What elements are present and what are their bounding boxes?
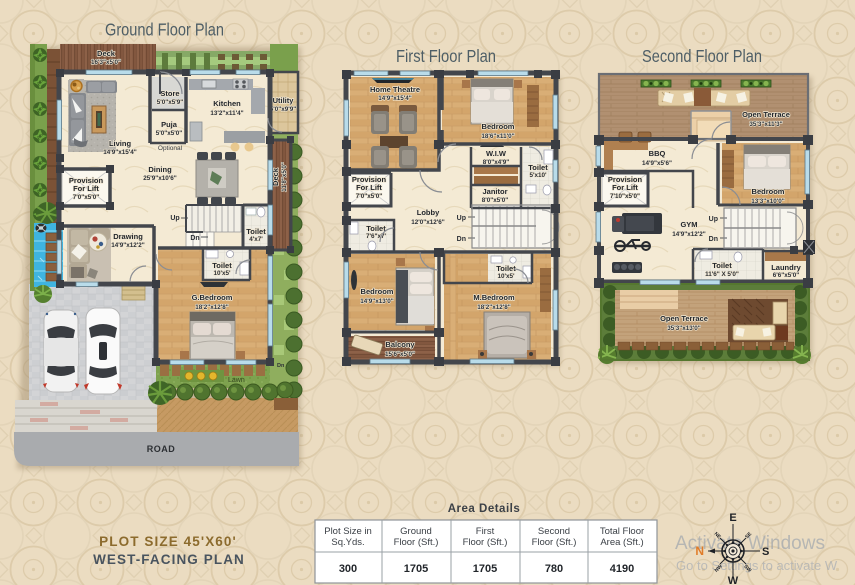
svg-text:Dn: Dn <box>709 236 718 243</box>
svg-text:13'2"x11'4": 13'2"x11'4" <box>210 110 243 117</box>
svg-text:Sq.Yds.: Sq.Yds. <box>331 537 364 548</box>
svg-text:Up: Up <box>709 216 718 223</box>
svg-text:10'x5': 10'x5' <box>213 270 231 277</box>
svg-text:Utility: Utility <box>273 96 295 105</box>
svg-text:PLOT SIZE 45'X60': PLOT SIZE 45'X60' <box>99 534 237 549</box>
svg-text:14'9"x12'2": 14'9"x12'2" <box>111 242 144 249</box>
svg-text:First: First <box>476 526 495 537</box>
svg-text:Bedroom: Bedroom <box>752 187 785 196</box>
svg-text:Floor (Sft.): Floor (Sft.) <box>394 537 439 548</box>
svg-text:7'0"x5'0": 7'0"x5'0" <box>356 193 382 200</box>
svg-text:E: E <box>729 512 736 524</box>
svg-text:6'6"x5'0": 6'6"x5'0" <box>773 272 799 279</box>
svg-text:10'x5': 10'x5' <box>497 273 515 280</box>
svg-text:14'9"x12'2": 14'9"x12'2" <box>672 231 705 238</box>
svg-text:Living: Living <box>109 139 132 148</box>
svg-text:Plot Size in: Plot Size in <box>324 526 372 537</box>
svg-text:Second Floor Plan: Second Floor Plan <box>642 46 762 66</box>
svg-text:7'6"x7': 7'6"x7' <box>366 233 386 240</box>
svg-text:Bedroom: Bedroom <box>482 122 515 131</box>
svg-text:Laundry: Laundry <box>771 263 801 272</box>
svg-text:For Lift: For Lift <box>356 183 382 192</box>
svg-text:Bedroom: Bedroom <box>361 287 394 296</box>
svg-text:Dining: Dining <box>148 165 172 174</box>
svg-text:5'0"x5'9": 5'0"x5'9" <box>157 99 183 106</box>
svg-text:18'6"x11'0": 18'6"x11'0" <box>481 133 514 140</box>
svg-text:Toilet: Toilet <box>212 261 232 270</box>
svg-text:7'0"x5'0": 7'0"x5'0" <box>73 194 99 201</box>
svg-text:S: S <box>762 546 769 558</box>
svg-text:8'0"x5'0": 8'0"x5'0" <box>482 197 508 204</box>
svg-text:11'8"x5'0": 11'8"x5'0" <box>281 162 288 192</box>
svg-text:For Lift: For Lift <box>73 184 99 193</box>
svg-text:15'6"x5'0": 15'6"x5'0" <box>385 351 415 358</box>
svg-text:780: 780 <box>545 563 563 575</box>
svg-text:25'9"x10'6": 25'9"x10'6" <box>143 175 176 182</box>
svg-text:Ground: Ground <box>400 526 432 537</box>
svg-text:300: 300 <box>339 563 357 575</box>
svg-text:Total Floor: Total Floor <box>600 526 644 537</box>
svg-text:1705: 1705 <box>473 563 497 575</box>
svg-text:18'2"x12'8": 18'2"x12'8" <box>195 304 228 311</box>
svg-text:G.Bedroom: G.Bedroom <box>192 293 233 302</box>
svg-text:Toilet: Toilet <box>366 224 386 233</box>
svg-text:Toilet: Toilet <box>528 163 548 172</box>
svg-text:Dn: Dn <box>190 235 199 242</box>
svg-text:W.I.W: W.I.W <box>486 149 507 158</box>
svg-text:Up: Up <box>457 215 466 222</box>
svg-text:4'x7': 4'x7' <box>249 236 263 243</box>
svg-text:First Floor Plan: First Floor Plan <box>396 46 496 66</box>
svg-text:Floor (Sft.): Floor (Sft.) <box>532 537 577 548</box>
svg-text:12'0"x12'6": 12'0"x12'6" <box>411 219 444 226</box>
svg-text:Open Terrace: Open Terrace <box>660 314 708 323</box>
svg-text:14'9"x13'0": 14'9"x13'0" <box>360 298 393 305</box>
svg-text:4190: 4190 <box>610 563 634 575</box>
svg-text:W: W <box>728 575 739 585</box>
svg-text:Floor (Sft.): Floor (Sft.) <box>463 537 508 548</box>
svg-text:Toilet: Toilet <box>246 227 266 236</box>
svg-text:WEST-FACING PLAN: WEST-FACING PLAN <box>93 552 245 567</box>
svg-text:GYM: GYM <box>680 220 697 229</box>
svg-text:Optional: Optional <box>158 145 183 152</box>
svg-text:16'3"x5'0": 16'3"x5'0" <box>91 59 121 66</box>
svg-text:Ground Floor Plan: Ground Floor Plan <box>105 20 224 40</box>
svg-text:5'x10': 5'x10' <box>529 172 547 179</box>
svg-text:Toilet: Toilet <box>712 261 732 270</box>
svg-text:M.Bedroom: M.Bedroom <box>473 293 515 302</box>
svg-text:Open Terrace: Open Terrace <box>742 110 790 119</box>
svg-text:Balcony: Balcony <box>385 340 415 349</box>
svg-text:Second: Second <box>538 526 570 537</box>
svg-text:Store: Store <box>160 89 179 98</box>
svg-text:14'9"x15'4": 14'9"x15'4" <box>103 149 136 156</box>
svg-text:Home Theatre: Home Theatre <box>370 85 420 94</box>
svg-text:Toilet: Toilet <box>496 264 516 273</box>
svg-text:1705: 1705 <box>404 563 428 575</box>
svg-text:11'6" X 5'0": 11'6" X 5'0" <box>705 271 739 278</box>
svg-text:Janitor: Janitor <box>482 187 507 196</box>
svg-text:Puja: Puja <box>161 120 178 129</box>
svg-text:BBQ: BBQ <box>649 149 666 158</box>
svg-text:Area (Sft.): Area (Sft.) <box>600 537 643 548</box>
svg-text:Area Details: Area Details <box>448 503 520 515</box>
svg-text:Dn: Dn <box>277 363 285 369</box>
svg-text:Go to Settings to activate W: Go to Settings to activate W <box>676 558 838 573</box>
svg-text:Up: Up <box>170 215 179 222</box>
svg-text:35'3"x11'3": 35'3"x11'3" <box>749 121 782 128</box>
svg-text:Deck: Deck <box>97 49 116 58</box>
svg-text:For Lift: For Lift <box>612 183 638 192</box>
svg-text:14'9"x15'4": 14'9"x15'4" <box>378 95 411 102</box>
svg-text:Drawing: Drawing <box>113 232 143 241</box>
svg-text:18'2"x12'8": 18'2"x12'8" <box>477 304 510 311</box>
svg-text:35'3"x13'0": 35'3"x13'0" <box>667 325 700 332</box>
svg-text:Lawn: Lawn <box>228 377 245 384</box>
svg-text:5'0"x5'0": 5'0"x5'0" <box>156 130 182 137</box>
svg-text:5'0"x9'9": 5'0"x9'9" <box>270 106 296 113</box>
svg-text:Dn: Dn <box>457 236 466 243</box>
svg-text:7'10"x5'0": 7'10"x5'0" <box>610 193 640 200</box>
svg-text:Lobby: Lobby <box>417 208 440 217</box>
svg-text:14'9"x5'6": 14'9"x5'6" <box>642 160 672 167</box>
svg-text:ROAD: ROAD <box>147 444 176 454</box>
svg-text:N: N <box>695 544 704 558</box>
svg-text:Kitchen: Kitchen <box>213 99 241 108</box>
